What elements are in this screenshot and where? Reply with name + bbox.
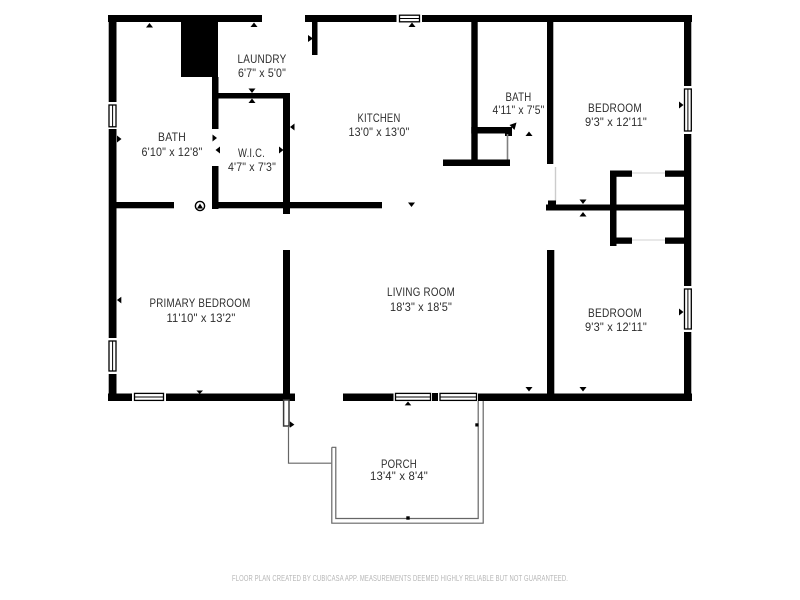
svg-text:9'3" x 12'11": 9'3" x 12'11"	[585, 115, 647, 129]
svg-text:LAUNDRY: LAUNDRY	[238, 52, 287, 66]
svg-text:4'7" x 7'3": 4'7" x 7'3"	[228, 160, 276, 174]
svg-text:13'0" x 13'0": 13'0" x 13'0"	[349, 125, 410, 139]
svg-text:11'10" x 13'2": 11'10" x 13'2"	[167, 311, 236, 325]
svg-text:BATH: BATH	[506, 90, 532, 104]
svg-text:KITCHEN: KITCHEN	[358, 111, 401, 125]
svg-text:BATH: BATH	[158, 130, 186, 144]
svg-text:BEDROOM: BEDROOM	[588, 101, 642, 115]
svg-text:18'3" x 18'5": 18'3" x 18'5"	[390, 300, 452, 314]
svg-text:FLOOR PLAN CREATED BY CUBICASA: FLOOR PLAN CREATED BY CUBICASA APP. MEAS…	[232, 574, 568, 583]
svg-text:6'7" x 5'0": 6'7" x 5'0"	[238, 66, 286, 80]
svg-text:LIVING ROOM: LIVING ROOM	[387, 285, 455, 299]
svg-text:PRIMARY BEDROOM: PRIMARY BEDROOM	[150, 296, 251, 310]
svg-text:4'11" x 7'5": 4'11" x 7'5"	[493, 103, 545, 117]
svg-text:6'10" x 12'8": 6'10" x 12'8"	[142, 145, 203, 159]
svg-text:BEDROOM: BEDROOM	[588, 306, 642, 320]
svg-text:W.I.C.: W.I.C.	[238, 146, 265, 160]
svg-text:9'3" x 12'11": 9'3" x 12'11"	[585, 320, 647, 334]
svg-text:13'4" x 8'4": 13'4" x 8'4"	[370, 469, 428, 483]
